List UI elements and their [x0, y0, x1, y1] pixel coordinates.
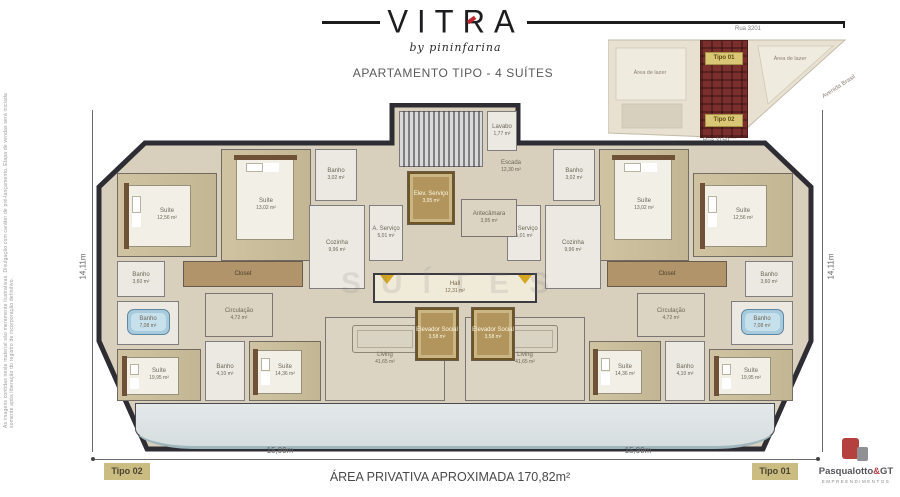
developer-name: Pasqualotto&GT: [814, 466, 898, 477]
room-suite: Suíte14,36 m²: [589, 341, 661, 401]
furniture-bed-h: [128, 185, 191, 246]
dimension-dot-left: [91, 457, 95, 461]
room-label: Elevador Social3,58 m²: [472, 308, 514, 360]
furniture-bed-v: [236, 159, 294, 240]
room-banho: Banho3,02 m²: [553, 149, 595, 201]
room-hall: Hall12,31 m²: [373, 273, 537, 303]
furniture-bed-h: [597, 350, 642, 394]
room-banho: Banho7,08 m²: [731, 301, 793, 345]
room-lavabo: Lavabo1,77 m²: [487, 111, 517, 151]
furniture-dining: [352, 325, 418, 353]
room-label: Hall12,31 m²: [375, 275, 535, 301]
dimension-line-left: [92, 110, 93, 452]
room-suite: Suíte12,56 m²: [693, 173, 793, 257]
room-closet: Closet: [183, 261, 303, 287]
room-label: Banho3,60 m²: [118, 262, 164, 296]
developer-name-suffix: GT: [880, 466, 893, 477]
room-suite: Suíte13,02 m²: [221, 149, 311, 261]
furniture-bed-h: [718, 357, 771, 395]
brand-byline: by pininfarina: [368, 41, 543, 54]
room-cozinha: Cozinha9,96 m²: [545, 205, 601, 289]
room-label: Lavabo1,77 m²: [488, 112, 516, 150]
room-label: Banho4,10 m²: [206, 342, 244, 400]
room-suite: Suíte19,95 m²: [117, 349, 201, 401]
room-banho: Banho3,60 m²: [745, 261, 793, 297]
developer-name-main: Pasqualotto: [819, 466, 873, 477]
site-map-unit-top-label: Tipo 01: [705, 52, 743, 65]
header-rule-right: [527, 21, 843, 24]
room-label: Banho3,02 m²: [316, 150, 356, 200]
furniture-bed-h: [126, 357, 179, 395]
dimension-bottom-right-label: 15,99m: [598, 446, 678, 455]
room-banho: Banho3,60 m²: [117, 261, 165, 297]
room-label: Closet: [184, 262, 302, 286]
room-cozinha: Cozinha9,96 m²: [309, 205, 365, 289]
legal-disclaimer: As imagens contidas neste material são m…: [3, 78, 15, 428]
room-antecamara: Antecâmara3,95 m²: [461, 199, 517, 237]
private-area-text: ÁREA PRIVATIVA APROXIMADA 170,82m²: [295, 470, 605, 484]
room-label: Elev. Serviço3,95 m²: [408, 172, 454, 224]
room-elev-servico: Elev. Serviço3,95 m²: [407, 171, 455, 225]
dimension-right-label: 14,11m: [827, 242, 836, 292]
page-subtitle: APARTAMENTO TIPO - 4 SUÍTES: [303, 66, 603, 80]
furniture-tub: [127, 309, 170, 335]
room-label: Antecâmara3,95 m²: [462, 200, 516, 236]
dimension-left-label: 14,11m: [79, 242, 88, 292]
room-a-servico: A. Serviço5,01 m²: [369, 205, 403, 261]
leisure-area-right-label: Área de lazer: [760, 56, 820, 62]
room-elevador-social: Elevador Social3,58 m²: [415, 307, 459, 361]
dimension-bottom-left-label: 15,99m: [240, 446, 320, 455]
room-label: Escada12,30 m²: [481, 155, 541, 179]
developer-ampersand: &: [873, 466, 880, 477]
room-label: Banho3,02 m²: [554, 150, 594, 200]
room-banho: Banho4,10 m²: [205, 341, 245, 401]
brand-logo: VITRA by pininfarina: [368, 4, 543, 54]
room-suite: Suíte13,02 m²: [599, 149, 689, 261]
furniture-bed-h: [257, 350, 302, 394]
room-label: A. Serviço5,01 m²: [370, 206, 402, 260]
room-label: Banho3,60 m²: [746, 262, 792, 296]
dimension-line-bottom: [94, 459, 818, 460]
furniture-tub: [741, 309, 784, 335]
room-escada: Escada12,30 m²: [481, 155, 541, 179]
furniture-bed-h: [704, 185, 767, 246]
room-label: Closet: [608, 262, 726, 286]
floor-plan: Suíte12,56 m²Suíte12,56 m²Banho3,60 m²Ba…: [95, 103, 815, 455]
room-arrow: [517, 275, 533, 285]
room-label: Banho4,10 m²: [666, 342, 704, 400]
room-banho: Banho7,08 m²: [117, 301, 179, 345]
unit-badge-tipo-02: Tipo 02: [104, 463, 150, 480]
room-circulacao: Circulação4,72 m²: [637, 293, 705, 337]
room-elevador-social: Elevador Social3,58 m²: [471, 307, 515, 361]
room-label: Circulação4,72 m²: [638, 294, 704, 336]
leisure-area-left-label: Área de lazer: [620, 70, 680, 76]
brand-wordmark: VITRA: [368, 3, 543, 40]
room-closet: Closet: [607, 261, 727, 287]
room-label: Cozinha9,96 m²: [310, 206, 364, 288]
room-banho: Banho3,02 m²: [315, 149, 357, 201]
page: VITRA by pininfarina APARTAMENTO TIPO - …: [0, 0, 900, 497]
street-top-label: Rua 3201: [688, 26, 808, 32]
dimension-line-right: [822, 110, 823, 452]
developer-logo: Pasqualotto&GT EMPREENDIMENTOS: [814, 438, 898, 494]
room-label: Cozinha9,96 m²: [546, 206, 600, 288]
developer-logo-icon: [842, 438, 872, 464]
room-suite: Suíte14,36 m²: [249, 341, 321, 401]
developer-tagline: EMPREENDIMENTOS: [814, 479, 898, 484]
room-label: Circulação4,72 m²: [206, 294, 272, 336]
room-circulacao: Circulação4,72 m²: [205, 293, 273, 337]
room-suite: Suíte12,56 m²: [117, 173, 217, 257]
room-stairs: [399, 111, 483, 167]
room-label: Elevador Social3,58 m²: [416, 308, 458, 360]
unit-badge-tipo-01: Tipo 01: [752, 463, 798, 480]
furniture-bed-v: [614, 159, 672, 240]
room-banho: Banho4,10 m²: [665, 341, 705, 401]
room-suite: Suíte19,95 m²: [709, 349, 793, 401]
room-balcony: [135, 403, 775, 449]
room-arrow: [379, 275, 395, 285]
floor-plan-rooms: Suíte12,56 m²Suíte12,56 m²Banho3,60 m²Ba…: [95, 103, 815, 455]
